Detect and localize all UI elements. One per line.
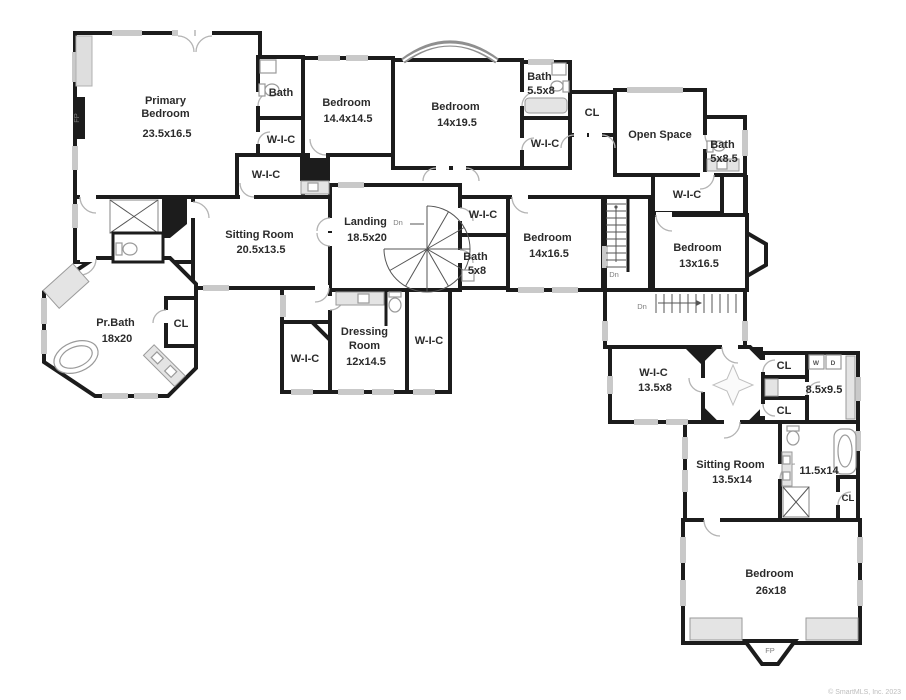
label-dryer: D: [831, 360, 836, 367]
window: [682, 437, 688, 459]
window-seat: [806, 618, 858, 640]
door-gap: [315, 285, 329, 291]
label-bath-11-5x14: 11.5x14: [799, 465, 839, 477]
toilet-icon: [116, 243, 122, 255]
door-gap: [328, 296, 334, 310]
window: [41, 330, 47, 354]
window: [627, 87, 683, 93]
window: [338, 182, 364, 188]
label-wic-primary-2: W-I-C: [252, 169, 281, 181]
sink-icon: [783, 456, 790, 464]
label-cl-lower: CL: [777, 405, 792, 417]
label-wic-center-top: W-I-C: [531, 138, 560, 150]
door-gap: [190, 202, 196, 218]
door-gap: [512, 194, 528, 200]
window: [602, 246, 608, 268]
door-gap: [574, 132, 587, 138]
toilet-icon: [787, 431, 799, 445]
label-dn-upper-stairs: Dn: [609, 270, 619, 279]
sink-icon: [358, 294, 369, 303]
room-sitting-2: [685, 422, 780, 520]
window: [857, 537, 863, 563]
door-gap: [436, 165, 449, 171]
window: [666, 419, 688, 425]
floor-plan-svg: Primary Bedroom 23.5x16.5 Bath W-I-C W-I…: [0, 0, 906, 700]
sink-icon: [783, 472, 790, 480]
window: [72, 204, 78, 228]
door-gap: [80, 256, 96, 262]
label-bath-primary-hall: Bath: [269, 87, 294, 99]
window: [680, 537, 686, 563]
door-gap: [704, 517, 720, 523]
window: [280, 295, 286, 317]
arrow-dot: [614, 205, 617, 208]
toilet-icon: [563, 81, 569, 92]
window: [413, 389, 435, 395]
door-gap: [457, 250, 463, 263]
window: [602, 321, 608, 341]
window: [346, 55, 368, 61]
window: [318, 55, 340, 61]
label-primary-bedroom: Primary Bedroom 23.5x16.5: [141, 95, 192, 140]
window: [112, 30, 142, 36]
door-gap: [589, 132, 602, 138]
door-gap: [327, 218, 333, 231]
closet-block: [76, 36, 92, 86]
door-gap: [196, 30, 212, 36]
label-dn-lower-stairs: Dn: [637, 302, 647, 311]
wall-segment: [743, 175, 748, 217]
sink-icon: [260, 60, 276, 73]
window: [607, 376, 613, 394]
window: [102, 393, 128, 399]
door-gap: [453, 165, 466, 171]
label-cl-hall-top: CL: [585, 107, 600, 119]
label-cl-bath-2: CL: [842, 493, 855, 504]
room-dressing-hall: [282, 288, 330, 322]
linen-closet: [765, 379, 778, 396]
label-wic-open-space: W-I-C: [673, 189, 702, 201]
window: [552, 287, 578, 293]
tub-icon: [838, 435, 852, 467]
room-sitting-1: [193, 197, 330, 288]
window: [72, 146, 78, 170]
label-laundry: 8.5x9.5: [806, 384, 843, 396]
label-fp-bedroom-26: FP: [765, 646, 775, 655]
window: [855, 377, 861, 401]
bay-window-bedroom-13-16: [747, 233, 766, 276]
door-gap: [80, 194, 96, 200]
window: [742, 130, 748, 156]
room-bedroom-14-19: [393, 60, 522, 168]
window: [518, 287, 544, 293]
toilet-icon: [389, 298, 401, 312]
door-gap: [724, 419, 740, 425]
label-cl-pr-bath: CL: [174, 318, 189, 330]
toilet-icon: [259, 84, 265, 96]
window: [338, 389, 364, 395]
door-gap: [327, 233, 333, 246]
label-wic-dressing-left: W-I-C: [291, 353, 320, 365]
label-wic-primary-1: W-I-C: [267, 134, 296, 146]
door-gap: [163, 310, 169, 323]
window: [203, 285, 229, 291]
door-gap: [700, 172, 714, 178]
door-gap: [656, 212, 672, 218]
door-gap: [178, 30, 194, 36]
sink-icon: [308, 183, 318, 191]
window: [41, 298, 47, 324]
window: [680, 580, 686, 606]
wall-chase: [300, 155, 330, 181]
toilet-icon: [389, 292, 401, 297]
shelving: [846, 356, 855, 419]
label-open-space: Open Space: [628, 129, 692, 141]
label-wic-dressing-right: W-I-C: [415, 335, 444, 347]
door-gap: [700, 378, 706, 392]
toilet-icon: [123, 243, 137, 255]
window: [742, 321, 748, 341]
window: [682, 470, 688, 492]
label-wic-landing: W-I-C: [469, 209, 498, 221]
tub-icon: [525, 98, 567, 113]
label-washer: W: [813, 360, 820, 367]
window: [372, 389, 394, 395]
room-hall-right-wing: [605, 290, 745, 347]
label-cl-upper: CL: [777, 360, 792, 372]
window: [857, 580, 863, 606]
floor-plan-page: Primary Bedroom 23.5x16.5 Bath W-I-C W-I…: [0, 0, 906, 700]
window: [291, 389, 313, 395]
window: [634, 419, 658, 425]
toilet-icon: [787, 426, 799, 431]
label-dn-spiral: Dn: [393, 218, 403, 227]
door-gap: [722, 344, 738, 350]
window: [134, 393, 158, 399]
copyright-text: © SmartMLS, Inc. 2023: [828, 688, 901, 696]
label-fp-primary: FP: [72, 113, 81, 123]
window-seat: [690, 618, 742, 640]
window: [528, 59, 554, 65]
